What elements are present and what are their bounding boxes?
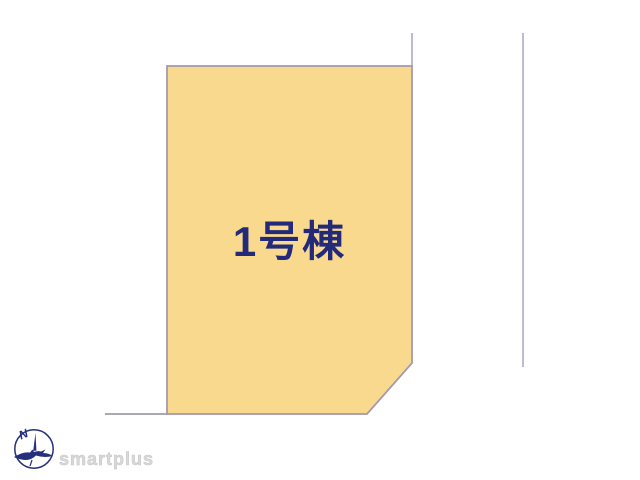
site-plan-canvas: 1号棟 N smartplus <box>0 0 640 480</box>
lot-1-label: 1号棟 <box>167 219 412 265</box>
